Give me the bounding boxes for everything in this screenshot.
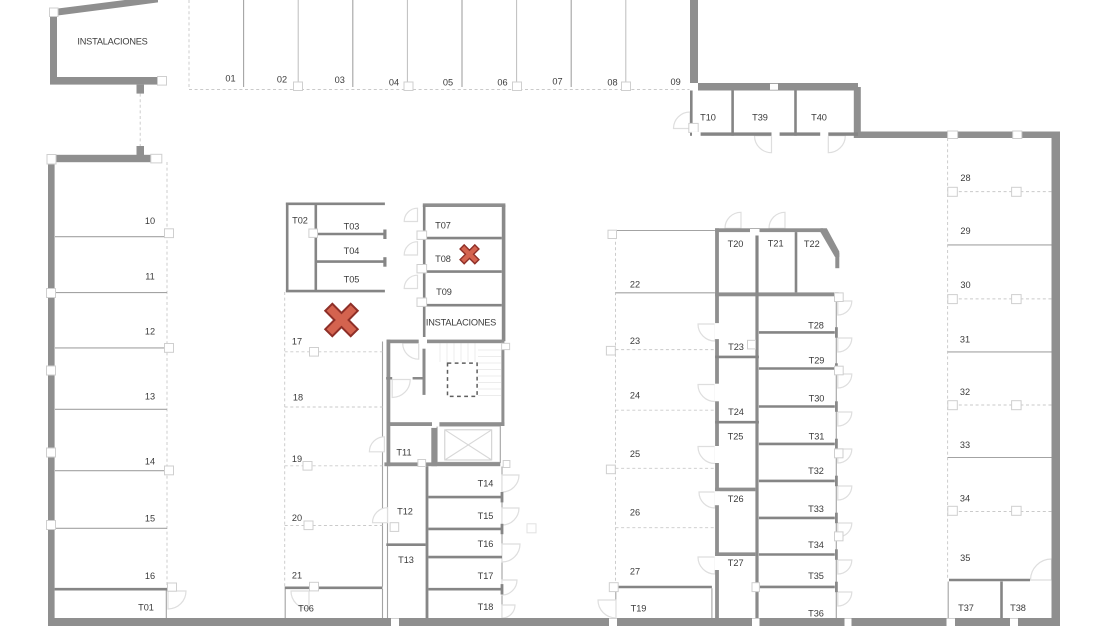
svg-text:18: 18 <box>293 392 303 402</box>
svg-text:INSTALACIONES: INSTALACIONES <box>77 37 147 47</box>
svg-text:T02: T02 <box>292 215 308 225</box>
svg-text:28: 28 <box>960 173 970 183</box>
svg-text:T38: T38 <box>1010 603 1026 613</box>
svg-text:33: 33 <box>960 440 970 450</box>
svg-text:T09: T09 <box>436 287 452 297</box>
svg-text:T34: T34 <box>808 540 824 550</box>
svg-text:08: 08 <box>607 78 617 88</box>
svg-text:15: 15 <box>145 514 155 524</box>
svg-text:20: 20 <box>292 513 302 523</box>
svg-text:09: 09 <box>670 77 680 87</box>
svg-text:23: 23 <box>630 336 640 346</box>
svg-text:T31: T31 <box>809 432 825 442</box>
svg-text:32: 32 <box>960 387 970 397</box>
svg-text:T32: T32 <box>808 466 824 476</box>
svg-text:T30: T30 <box>809 393 825 403</box>
svg-text:26: 26 <box>630 508 640 518</box>
svg-text:13: 13 <box>145 392 155 402</box>
svg-text:T16: T16 <box>478 539 494 549</box>
svg-text:30: 30 <box>960 280 970 290</box>
svg-text:T01: T01 <box>138 603 154 613</box>
svg-text:T07: T07 <box>435 220 451 230</box>
svg-text:T35: T35 <box>808 571 824 581</box>
svg-text:T28: T28 <box>808 321 824 331</box>
svg-text:34: 34 <box>960 493 970 503</box>
svg-text:T33: T33 <box>808 504 824 514</box>
svg-text:04: 04 <box>389 78 399 88</box>
svg-text:T14: T14 <box>478 478 494 488</box>
svg-text:27: 27 <box>630 567 640 577</box>
svg-text:T17: T17 <box>478 571 494 581</box>
svg-text:T37: T37 <box>958 603 974 613</box>
svg-text:03: 03 <box>335 75 345 85</box>
svg-text:T05: T05 <box>344 274 360 284</box>
svg-text:T11: T11 <box>396 447 411 457</box>
svg-text:T27: T27 <box>728 558 744 568</box>
svg-text:T18: T18 <box>478 602 494 612</box>
svg-text:T03: T03 <box>344 222 360 232</box>
svg-text:22: 22 <box>630 280 640 290</box>
svg-text:19: 19 <box>292 454 302 464</box>
svg-text:T21: T21 <box>768 239 784 249</box>
svg-text:29: 29 <box>960 226 970 236</box>
svg-text:T15: T15 <box>478 511 494 521</box>
svg-text:T40: T40 <box>811 113 827 123</box>
svg-text:10: 10 <box>145 216 155 226</box>
svg-text:25: 25 <box>630 449 640 459</box>
svg-text:T04: T04 <box>344 246 360 256</box>
svg-text:T25: T25 <box>728 432 744 442</box>
svg-text:INSTALACIONES: INSTALACIONES <box>426 318 496 328</box>
svg-text:17: 17 <box>292 337 302 347</box>
svg-text:02: 02 <box>277 74 287 84</box>
svg-text:T29: T29 <box>809 355 825 365</box>
svg-text:T10: T10 <box>700 113 716 123</box>
svg-text:T08: T08 <box>435 254 451 264</box>
svg-text:01: 01 <box>225 74 235 84</box>
svg-text:11: 11 <box>145 272 155 282</box>
svg-text:05: 05 <box>443 78 453 88</box>
svg-text:T20: T20 <box>728 239 744 249</box>
svg-text:31: 31 <box>960 335 970 345</box>
svg-text:T23: T23 <box>728 342 744 352</box>
svg-text:35: 35 <box>960 553 970 563</box>
svg-text:24: 24 <box>630 391 640 401</box>
svg-text:T26: T26 <box>728 494 744 504</box>
svg-text:14: 14 <box>145 457 155 467</box>
svg-text:T36: T36 <box>808 609 824 619</box>
svg-text:07: 07 <box>552 77 562 87</box>
svg-text:21: 21 <box>292 570 302 580</box>
svg-text:T12: T12 <box>397 507 413 517</box>
svg-text:T13: T13 <box>398 555 414 565</box>
svg-text:16: 16 <box>145 571 155 581</box>
svg-text:T22: T22 <box>804 239 820 249</box>
svg-text:06: 06 <box>497 78 507 88</box>
svg-text:T19: T19 <box>631 604 647 614</box>
svg-text:12: 12 <box>145 327 155 337</box>
svg-text:T24: T24 <box>728 407 744 417</box>
svg-text:T39: T39 <box>752 113 768 123</box>
svg-text:T06: T06 <box>298 604 314 614</box>
